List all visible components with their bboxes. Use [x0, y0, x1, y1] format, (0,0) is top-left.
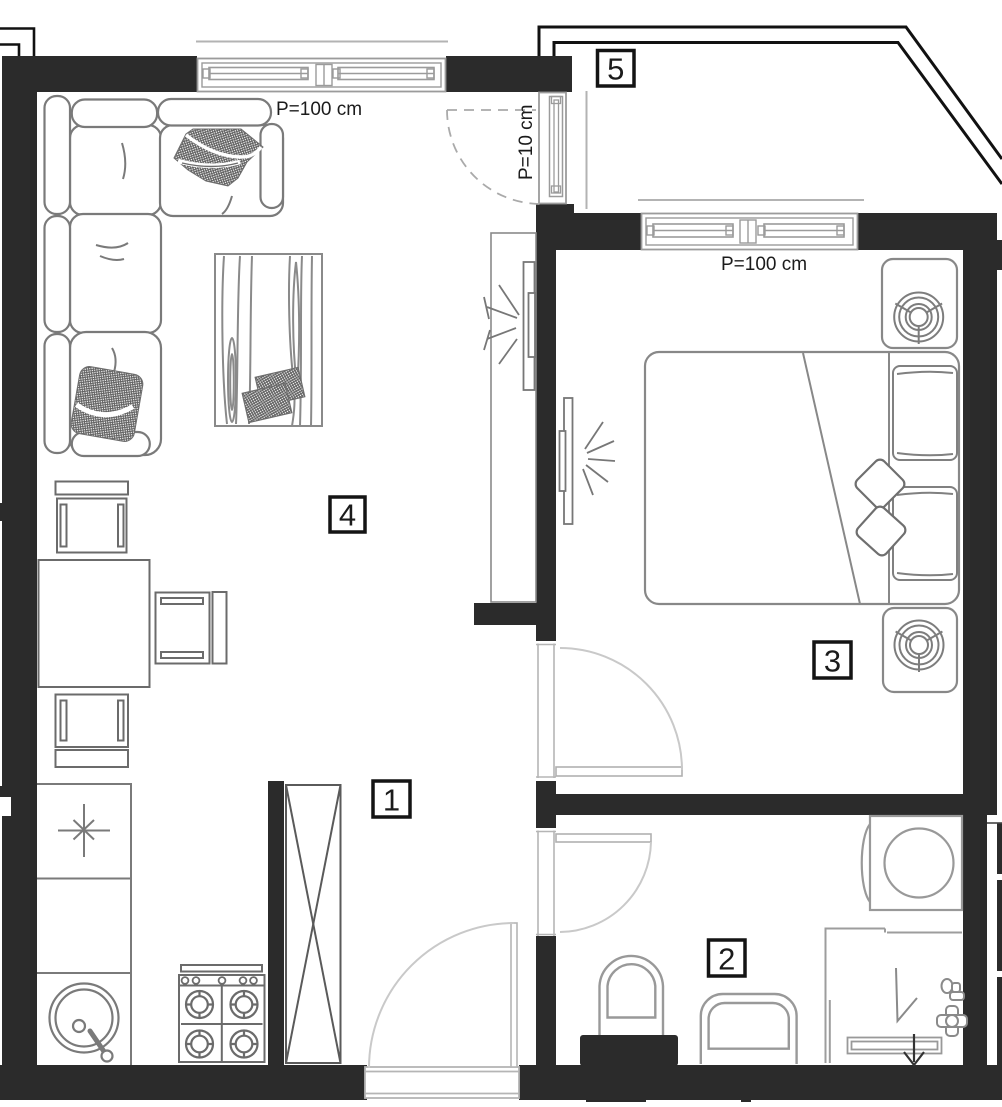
svg-text:1: 1	[383, 783, 400, 818]
svg-text:P=100 cm: P=100 cm	[721, 254, 807, 275]
svg-text:P=10 cm: P=10 cm	[516, 104, 537, 180]
svg-text:3: 3	[824, 644, 841, 679]
svg-text:4: 4	[339, 498, 356, 533]
svg-text:2: 2	[718, 942, 735, 977]
svg-text:5: 5	[607, 52, 624, 87]
svg-text:P=100 cm: P=100 cm	[276, 99, 362, 120]
